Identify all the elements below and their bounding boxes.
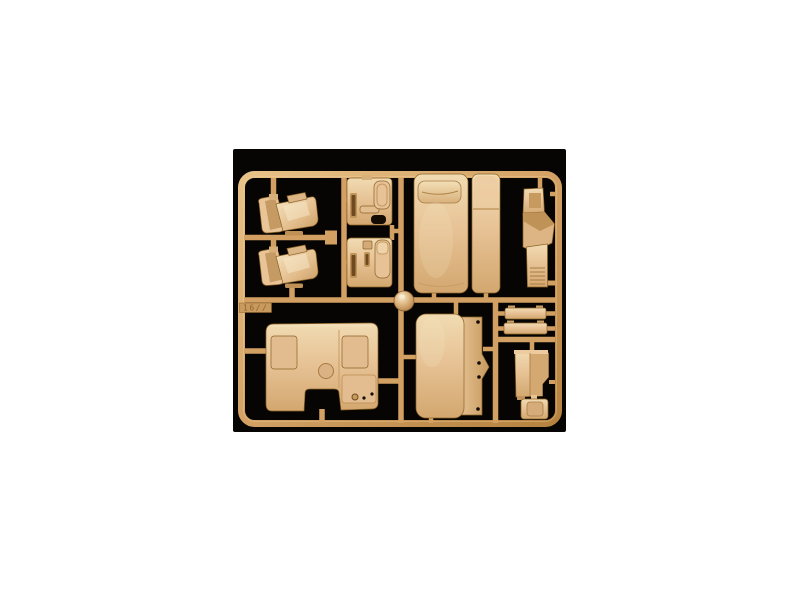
engine-cover-hole-2: [370, 392, 373, 395]
dash-lower-column: [527, 244, 548, 287]
panel-hole-3: [477, 375, 481, 379]
base-top-pad: [474, 176, 498, 207]
engine-cover-right-panel: [342, 336, 368, 368]
engine-cover-cap: [319, 364, 334, 379]
door1-top-tab: [362, 175, 372, 180]
dome-body: [394, 291, 414, 311]
door2-switch-block: [363, 241, 372, 249]
part-bunk-base: Bunk mattress base panel: [472, 174, 500, 293]
part-door-panel-upper: Door interior panel (upper): [347, 175, 392, 225]
door1-pocket: [374, 181, 390, 209]
engine-cover-grommet: [352, 394, 358, 400]
panel-sheen: [419, 317, 445, 367]
product-photo: 16// Truck seat (upper) Truck seat (lowe…: [0, 0, 800, 600]
injection-gate-pad: [325, 231, 337, 245]
part-dome-knob: Dome knob: [394, 291, 414, 311]
door2-slot: [352, 255, 356, 276]
hatch-recess: [527, 402, 543, 416]
panel-hole-2: [477, 361, 481, 365]
dome-tip-highlight: [399, 294, 405, 298]
engine-cover-subpanel: [342, 375, 376, 403]
heater-top-lip: [514, 350, 548, 354]
panel-hole-1: [476, 320, 480, 324]
engine-cover-left-panel: [271, 336, 297, 369]
panel-hole-4: [476, 407, 480, 411]
engine-cover-hole-1: [362, 396, 365, 399]
strip2-body: [504, 323, 547, 334]
bed-sheen: [419, 202, 453, 278]
strip1-body: [505, 308, 546, 319]
part-cab-panel: Cab panel with hinge flange: [416, 314, 489, 418]
part-bunk-bed: Sleeper bunk with pillow: [414, 174, 468, 293]
door1-cutout: [371, 215, 386, 224]
door2-vent: [366, 254, 369, 265]
door1-slot: [352, 195, 356, 216]
door2-pocket-top: [377, 242, 388, 254]
part-door-panel-lower: Door interior panel (lower): [347, 238, 392, 287]
mold-code-text: 16//: [243, 304, 268, 313]
dash-top-recess: [529, 193, 541, 208]
mold-code-tag: 16//: [240, 303, 272, 313]
